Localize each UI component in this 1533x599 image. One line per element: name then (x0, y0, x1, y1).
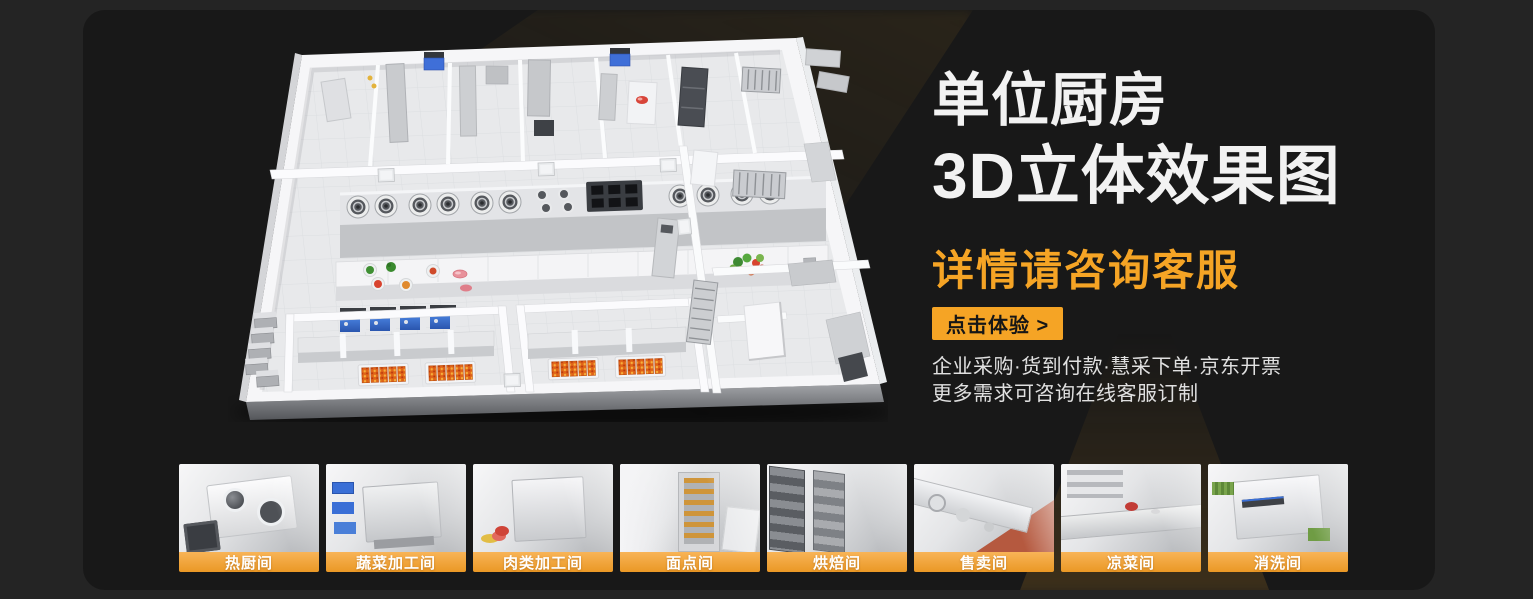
promo-banner-card: 单位厨房 3D立体效果图 详情请咨询客服 点击体验 > 企业采购·货到付款·慧采… (83, 10, 1435, 590)
room-thumbnail[interactable]: 面点间 (620, 464, 760, 572)
room-thumbnail[interactable]: 消洗间 (1208, 464, 1348, 572)
room-thumbnail-label: 烘焙间 (767, 552, 907, 572)
room-thumbnail[interactable]: 凉菜间 (1061, 464, 1201, 572)
room-thumbnails: 热厨间 蔬菜加工间 肉类加工间 面点间 烘焙间 售卖间 凉菜间 (179, 464, 1348, 572)
room-thumbnail[interactable]: 蔬菜加工间 (326, 464, 466, 572)
room-thumbnail-label: 肉类加工间 (473, 552, 613, 572)
room-thumbnail-label: 售卖间 (914, 552, 1054, 572)
room-thumbnail-label: 面点间 (620, 552, 760, 572)
hero-subtitle: 详情请咨询客服 (932, 250, 1240, 292)
kitchen-3d-floorplan (228, 22, 888, 422)
promo-page: 单位厨房 3D立体效果图 详情请咨询客服 点击体验 > 企业采购·货到付款·慧采… (0, 0, 1533, 599)
kitchen-3d-floorplan-image (228, 22, 888, 422)
hero-copy: 单位厨房 3D立体效果图 详情请咨询客服 点击体验 > 企业采购·货到付款·慧采… (932, 10, 1435, 450)
room-thumbnail-image (326, 464, 466, 552)
room-thumbnail-image (179, 464, 319, 552)
hero-title-line1: 单位厨房 (932, 72, 1168, 130)
room-thumbnail[interactable]: 烘焙间 (767, 464, 907, 572)
room-thumbnail-label: 热厨间 (179, 552, 319, 572)
room-thumbnail-image (473, 464, 613, 552)
room-thumbnail-image (620, 464, 760, 552)
room-thumbnail-label: 消洗间 (1208, 552, 1348, 572)
room-thumbnail-image (1061, 464, 1201, 552)
room-thumbnail-label: 蔬菜加工间 (326, 552, 466, 572)
room-thumbnail[interactable]: 售卖间 (914, 464, 1054, 572)
info-line-1: 企业采购·货到付款·慧采下单·京东开票 (932, 357, 1281, 377)
room-thumbnail[interactable]: 热厨间 (179, 464, 319, 572)
cta-button[interactable]: 点击体验 > (932, 307, 1063, 340)
room-thumbnail-image (1208, 464, 1348, 552)
hero-title-line2: 3D立体效果图 (932, 144, 1341, 208)
room-thumbnail-label: 凉菜间 (1061, 552, 1201, 572)
room-thumbnail-image (914, 464, 1054, 552)
room-thumbnail[interactable]: 肉类加工间 (473, 464, 613, 572)
room-thumbnail-image (767, 464, 907, 552)
info-line-2: 更多需求可咨询在线客服订制 (932, 384, 1199, 404)
